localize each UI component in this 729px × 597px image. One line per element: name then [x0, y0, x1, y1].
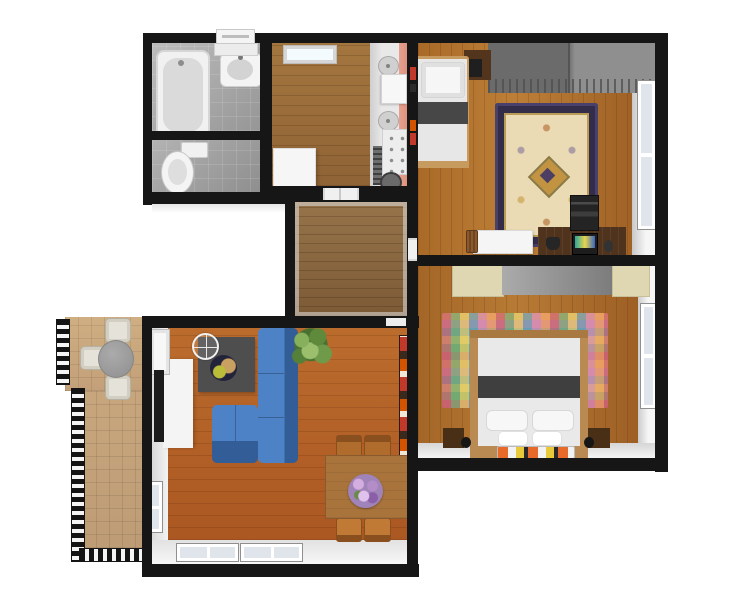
wall-bath-left	[143, 33, 152, 205]
bathroom-mirror-cabinet	[216, 29, 255, 44]
kitchen-sink-2	[378, 111, 399, 131]
desk-phone	[546, 237, 560, 250]
single-bed-pillow	[421, 62, 465, 98]
pillow	[486, 410, 528, 431]
bedside-lamp-right	[584, 437, 594, 448]
single-bed	[415, 56, 469, 168]
open-door-leaf	[473, 230, 533, 254]
sink-drain-icon	[386, 64, 390, 68]
sofa-seam	[258, 417, 284, 418]
wall-books-orange	[410, 120, 416, 131]
toilet-bowl	[161, 151, 194, 194]
single-bed-footboard	[415, 161, 469, 168]
kitchen-sink-1	[378, 56, 399, 76]
sofa-seam	[235, 405, 236, 441]
wall-bath-kitchen	[260, 33, 272, 204]
doorway-hall-bedroom1	[408, 238, 417, 261]
tv	[154, 370, 164, 442]
small-pillow	[532, 431, 562, 446]
bathroom-shelf	[214, 43, 258, 56]
mirror-cabinet-handle	[222, 35, 249, 38]
balcony-floor-column	[83, 391, 143, 548]
computer-mouse	[604, 240, 613, 252]
living-window-1	[176, 543, 239, 562]
wall-books-red-2	[410, 133, 416, 145]
window-mullion	[643, 354, 654, 358]
kitchen-lamp-glass	[287, 49, 333, 60]
mirror-frame-line	[194, 347, 217, 348]
wall-living-left	[142, 316, 152, 577]
wall-center-spine	[407, 33, 418, 577]
wall-bedroom2-bottom	[407, 458, 668, 471]
printer	[570, 195, 599, 231]
washbasin	[220, 53, 262, 87]
bathtub-faucet	[178, 60, 184, 66]
wall-hall-left	[285, 196, 295, 328]
bedroom1-wardrobe	[488, 43, 655, 93]
building-shadow	[152, 204, 290, 213]
bedside-lamp-left	[461, 437, 471, 448]
wall-books-red	[410, 67, 416, 80]
wall-books-dark	[410, 84, 416, 92]
wall-living-top	[142, 316, 419, 328]
pillow	[532, 410, 574, 431]
double-bed	[470, 330, 588, 458]
balcony-railing-left	[71, 388, 85, 562]
bedroom1-window	[637, 80, 656, 230]
bathtub-basin	[163, 58, 203, 132]
bathtub	[156, 50, 210, 140]
living-window-2	[240, 543, 303, 562]
cooktop-knob-panel	[382, 129, 407, 175]
toilet-seat	[168, 159, 187, 185]
wall-bath-wc	[152, 131, 260, 140]
wicker-basket	[466, 230, 478, 253]
bedroom2-cabinet-right	[612, 265, 650, 297]
kitchen-appliance	[381, 74, 407, 104]
sink-drain-icon	[386, 119, 390, 123]
double-bed-headboard	[470, 330, 588, 338]
sectional-sofa-chaise	[212, 405, 258, 463]
wall-bedroom-divider	[407, 255, 668, 266]
wardrobe-vent-slats	[488, 79, 655, 93]
flower-vase	[348, 474, 383, 508]
washbasin-bowl	[227, 59, 253, 80]
laptop	[572, 233, 598, 255]
kitchen-ceiling-light	[283, 45, 337, 64]
single-bed-blanket	[416, 102, 468, 124]
bedroom2-wardrobe	[502, 262, 612, 295]
double-bed-blanket	[478, 376, 580, 398]
dresser-item	[467, 59, 482, 77]
hallway-floor	[295, 202, 407, 316]
balcony-door	[150, 329, 170, 375]
window-mullion	[640, 153, 653, 157]
small-pillow	[498, 431, 528, 446]
doorway-kitchen-hall	[323, 188, 359, 200]
balcony-railing-top-left	[56, 319, 70, 385]
wall-living-bottom	[142, 564, 419, 577]
doorway-hall-living	[386, 318, 406, 326]
window-mullion	[207, 546, 210, 559]
balcony-round-table	[98, 340, 134, 378]
bedroom2-cabinet-left	[452, 265, 504, 297]
dining-chair-bottom-right	[364, 518, 391, 542]
dining-chair-bottom-left	[336, 518, 362, 542]
round-mirror	[192, 333, 219, 360]
wall-right-outer	[655, 33, 668, 472]
balcony-railing-bottom	[79, 548, 146, 562]
sofa-seam	[258, 373, 284, 374]
floor-plan	[0, 0, 729, 597]
window-mullion	[271, 546, 274, 559]
balcony-chair-bottom	[105, 375, 131, 400]
decorative-bowl	[210, 355, 237, 381]
laptop-screen	[575, 236, 595, 248]
